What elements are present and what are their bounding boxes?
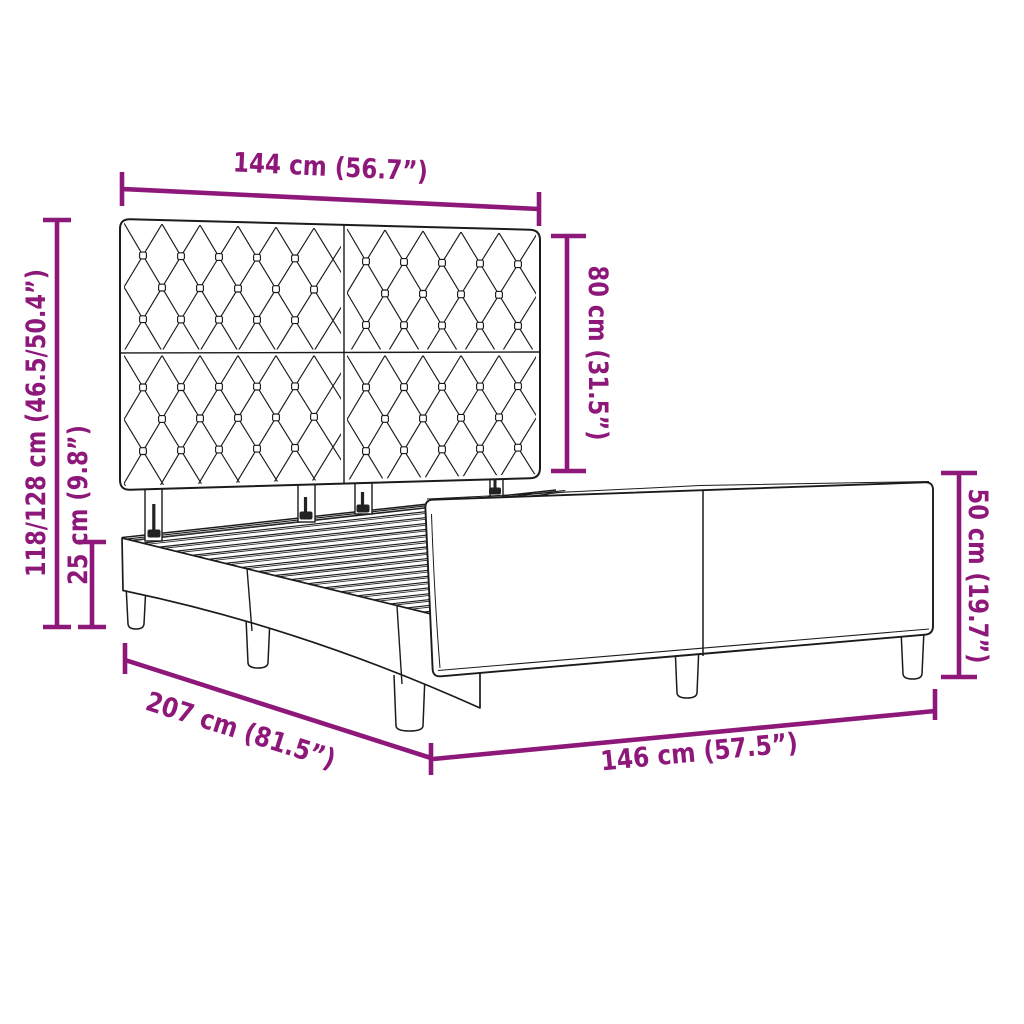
- dimension-base-height-label: 25 cm (9.8”): [63, 425, 94, 585]
- dimension-headboard-height: 80 cm (31.5”): [551, 236, 613, 471]
- dimension-headboard-height-label: 80 cm (31.5”): [582, 266, 613, 441]
- dimension-bed-length-label: 207 cm (81.5”): [142, 686, 339, 775]
- dimension-footboard-height-label: 50 cm (19.7”): [962, 489, 993, 664]
- dimension-base-height: 25 cm (9.8”): [63, 425, 106, 627]
- dimension-headboard-width-label: 144 cm (56.7”): [232, 147, 428, 187]
- dimension-line: [122, 189, 539, 209]
- dimension-footboard-height: 50 cm (19.7”): [941, 473, 993, 677]
- bed-frame-line-art: [105, 219, 933, 731]
- dimension-bed-width: 146 cm (57.5”): [433, 689, 935, 777]
- dimension-total-height-label: 118/128 cm (46.5/50.4”): [21, 269, 52, 577]
- dimension-headboard-width: 144 cm (56.7”): [122, 147, 539, 226]
- bed-frame-dimension-diagram: 144 cm (56.7”) 80 cm (31.5”) 118/128 cm …: [0, 0, 1024, 1024]
